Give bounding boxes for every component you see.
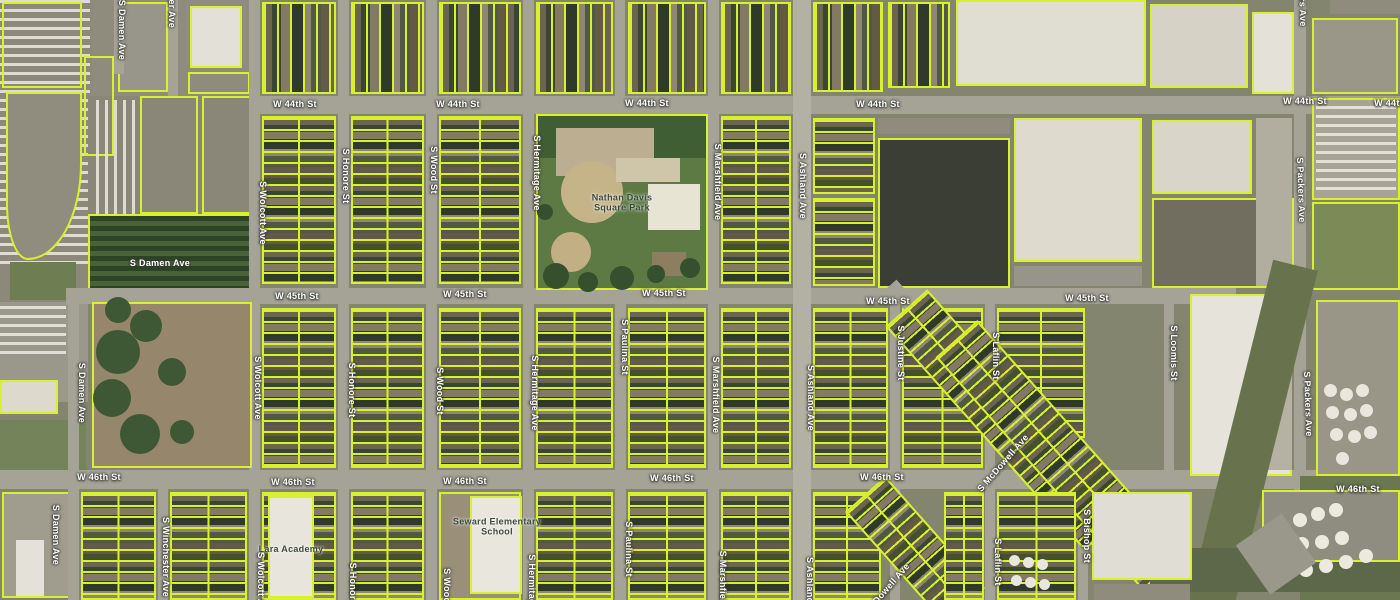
storage-tank — [1356, 384, 1369, 397]
parcel-outline — [2, 2, 82, 88]
storage-tank — [1348, 430, 1361, 443]
trailer-lot — [118, 2, 168, 92]
parcel-block — [81, 492, 156, 600]
parcel-block — [628, 492, 706, 600]
parcel-block — [439, 116, 521, 284]
parcel-block — [536, 308, 613, 468]
parcel-block — [351, 2, 424, 94]
storage-tank — [1329, 503, 1343, 517]
truck-row — [1094, 584, 1190, 600]
street-s-damen — [68, 288, 79, 600]
street-s-paulina — [615, 288, 626, 600]
street-s-damen-north — [114, 0, 124, 74]
street-s-marshfield — [708, 0, 719, 600]
park-building — [648, 184, 700, 230]
storage-tank — [1315, 535, 1329, 549]
storage-tank — [1011, 575, 1022, 586]
factory-roof — [956, 0, 1146, 86]
tree — [578, 272, 598, 292]
storage-tank — [1344, 408, 1357, 421]
tree — [537, 204, 553, 220]
storage-tank — [1336, 452, 1349, 465]
storage-tank — [1039, 579, 1050, 590]
industrial-yard — [1014, 266, 1142, 286]
tree-rows — [90, 216, 254, 294]
factory-roof — [1150, 4, 1248, 88]
parcel-block — [351, 492, 424, 600]
parcel-block — [628, 308, 706, 468]
factory-roof — [1014, 118, 1142, 262]
tree — [120, 414, 160, 454]
baseball-diamond — [561, 161, 623, 223]
lara-academy-building — [268, 496, 314, 598]
storage-tank — [1339, 555, 1353, 569]
storage-tank — [1335, 531, 1349, 545]
storage-tank — [1324, 384, 1337, 397]
building-roof — [190, 6, 242, 68]
storage-tank — [1009, 555, 1020, 566]
building-roof — [16, 540, 44, 596]
storage-tank — [1340, 388, 1353, 401]
parcel-block — [813, 2, 883, 92]
street-s-loomis — [1164, 288, 1174, 484]
storage-tank — [1293, 513, 1307, 527]
industrial-yard — [878, 118, 1010, 134]
street-s-winchester — [158, 470, 168, 600]
parking-rows — [0, 306, 66, 356]
parcel-block — [997, 492, 1076, 600]
street-s-packers — [1294, 0, 1306, 492]
parcel-block — [813, 118, 875, 194]
factory-roof — [1152, 120, 1252, 194]
street-s-ashland — [793, 0, 811, 600]
tree — [680, 258, 700, 278]
parcel-block — [944, 492, 984, 600]
parcel-block — [439, 308, 521, 468]
storage-tank — [1311, 507, 1325, 521]
storage-tank — [1023, 557, 1034, 568]
parcel-block — [262, 308, 336, 468]
parcel-block — [536, 492, 613, 600]
parcel-block — [721, 2, 791, 94]
parcel-block — [351, 116, 424, 284]
parcel-block — [721, 308, 791, 468]
parcel-block — [813, 198, 875, 286]
tree — [647, 265, 665, 283]
parcel-outline — [188, 72, 250, 94]
factory-roof — [1092, 492, 1192, 580]
street-s-wolcott — [249, 0, 260, 600]
parcel-outline — [140, 96, 198, 214]
seward-school-building — [470, 496, 522, 594]
street-s-honore — [338, 0, 349, 600]
tree — [543, 263, 569, 289]
parcel-block — [628, 2, 706, 94]
parcel-block — [262, 2, 336, 94]
tree — [158, 358, 186, 386]
tree — [170, 420, 194, 444]
parcel-block — [536, 2, 613, 94]
parcel-block — [170, 492, 247, 600]
storage-tank — [1025, 577, 1036, 588]
parcel-block — [813, 308, 888, 468]
storage-tank — [1360, 404, 1373, 417]
truck-row — [1330, 0, 1400, 14]
parcel-block — [351, 308, 424, 468]
map-canvas[interactable]: W 44th StW 44th StW 44th StW 44th StW 44… — [0, 0, 1400, 600]
truck-rows — [1316, 106, 1396, 196]
tree — [610, 266, 634, 290]
storage-tank — [1364, 426, 1377, 439]
tree — [93, 379, 131, 417]
storage-tank — [1326, 406, 1339, 419]
building-roof — [1252, 12, 1294, 94]
storage-tank — [1319, 559, 1333, 573]
parcel-outline — [202, 96, 256, 214]
street-s-winchester-north — [168, 0, 178, 96]
storage-tank — [1359, 549, 1373, 563]
building-roof — [0, 380, 58, 414]
street-s-wood — [426, 0, 437, 600]
parcel-block — [439, 2, 521, 94]
street-s-hermitage — [523, 0, 534, 600]
parcel-block — [721, 116, 791, 284]
parcel-outline — [1312, 18, 1398, 94]
park-building — [616, 158, 680, 182]
green-field — [1312, 202, 1400, 290]
tree — [130, 310, 162, 342]
storage-tank — [1330, 428, 1343, 441]
storage-tank — [1037, 559, 1048, 570]
street-s-paulina-north — [615, 0, 625, 96]
factory-roof-dark — [878, 138, 1010, 288]
parcel-block — [888, 2, 950, 88]
tree — [105, 297, 131, 323]
parcel-block — [262, 116, 336, 284]
parcel-block — [721, 492, 791, 600]
